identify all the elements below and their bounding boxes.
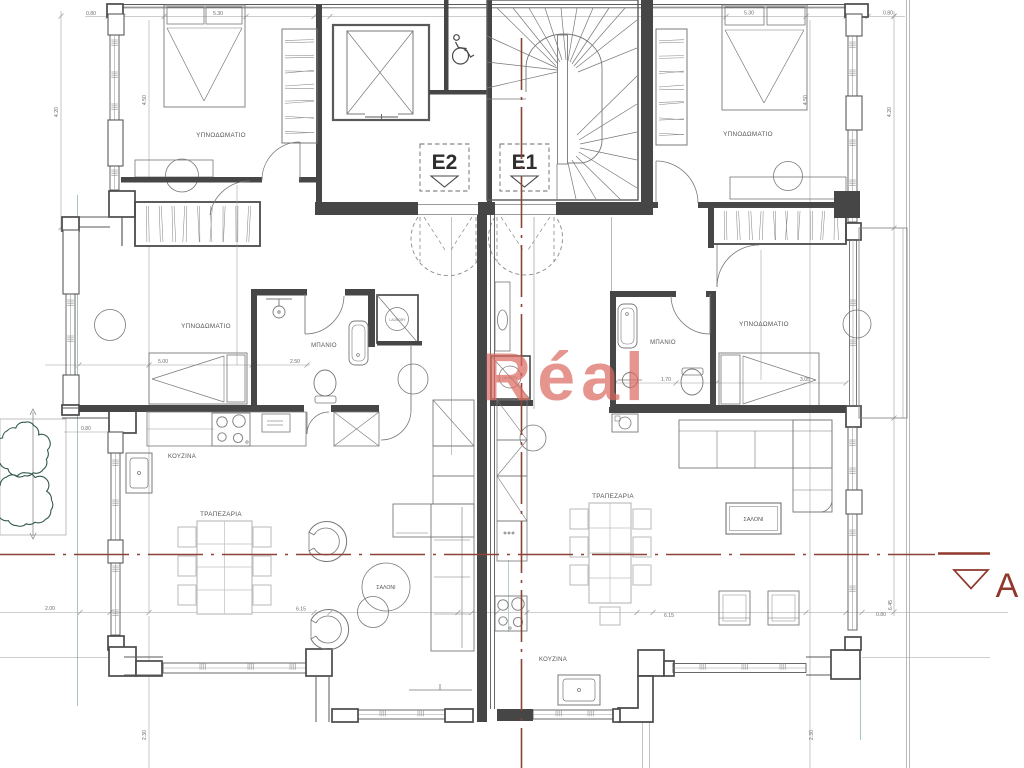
svg-text:ΥΠΝΟΔΩΜΑΤΙΟ: ΥΠΝΟΔΩΜΑΤΙΟ	[739, 321, 789, 328]
svg-text:2.30: 2.30	[142, 730, 148, 740]
svg-text:2.50: 2.50	[290, 359, 300, 365]
svg-text:6.15: 6.15	[296, 607, 306, 613]
svg-text:6.15: 6.15	[664, 613, 674, 619]
svg-text:ΚΟΥΖΙΝΑ: ΚΟΥΖΙΝΑ	[539, 657, 567, 663]
svg-text:6.45: 6.45	[888, 600, 894, 610]
svg-text:0.80: 0.80	[876, 612, 886, 618]
svg-text:LAUNDRY: LAUNDRY	[389, 318, 406, 322]
svg-text:4.50: 4.50	[142, 95, 148, 105]
svg-text:4.20: 4.20	[54, 107, 60, 117]
svg-text:ΜΠΑΝΙΟ: ΜΠΑΝΙΟ	[311, 343, 337, 349]
svg-text:5.30: 5.30	[744, 11, 754, 17]
svg-text:E2: E2	[432, 151, 458, 174]
svg-text:ΣΑΛΟΝΙ: ΣΑΛΟΝΙ	[376, 585, 395, 591]
svg-text:5.00: 5.00	[158, 359, 168, 365]
svg-text:0.80: 0.80	[86, 11, 96, 17]
svg-text:0.80: 0.80	[883, 11, 893, 17]
svg-text:ΜΠΑΝΙΟ: ΜΠΑΝΙΟ	[650, 340, 676, 346]
svg-text:Réal: Réal	[482, 339, 650, 415]
svg-text:2.00: 2.00	[45, 606, 55, 612]
svg-text:ΤΡΑΠΕΖΑΡΙΑ: ΤΡΑΠΕΖΑΡΙΑ	[200, 511, 242, 518]
svg-text:2.30: 2.30	[809, 730, 815, 740]
svg-text:5.30: 5.30	[213, 11, 223, 17]
svg-text:ΤΡΑΠΕΖΑΡΙΑ: ΤΡΑΠΕΖΑΡΙΑ	[592, 493, 634, 500]
svg-text:0.80: 0.80	[81, 426, 91, 432]
svg-text:ΚΟΥΖΙΝΑ: ΚΟΥΖΙΝΑ	[168, 454, 196, 460]
svg-text:4.20: 4.20	[887, 107, 893, 117]
svg-text:A: A	[996, 567, 1019, 605]
svg-text:ΥΠΝΟΔΩΜΑΤΙΟ: ΥΠΝΟΔΩΜΑΤΙΟ	[723, 131, 773, 138]
svg-text:4.50: 4.50	[803, 95, 809, 105]
svg-text:ΥΠΝΟΔΩΜΑΤΙΟ: ΥΠΝΟΔΩΜΑΤΙΟ	[196, 132, 246, 139]
svg-text:ΥΠΝΟΔΩΜΑΤΙΟ: ΥΠΝΟΔΩΜΑΤΙΟ	[181, 323, 231, 330]
svg-text:1.70: 1.70	[661, 377, 671, 383]
svg-text:ΣΑΛΟΝΙ: ΣΑΛΟΝΙ	[744, 517, 764, 523]
svg-text:E1: E1	[512, 151, 538, 174]
